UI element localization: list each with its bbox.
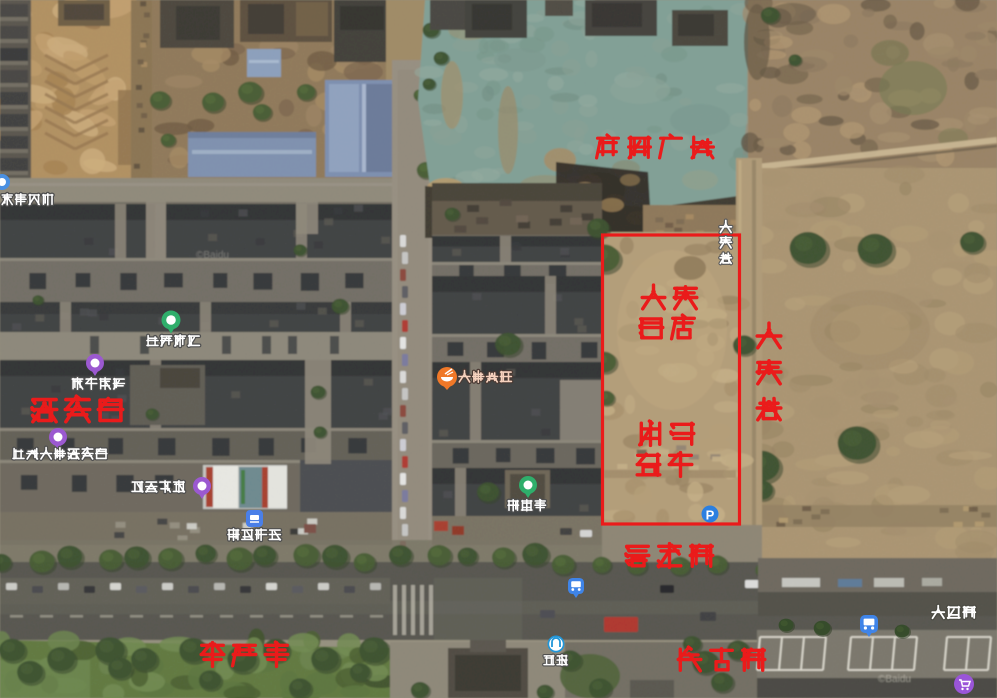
svg-text:P: P [706, 508, 715, 523]
